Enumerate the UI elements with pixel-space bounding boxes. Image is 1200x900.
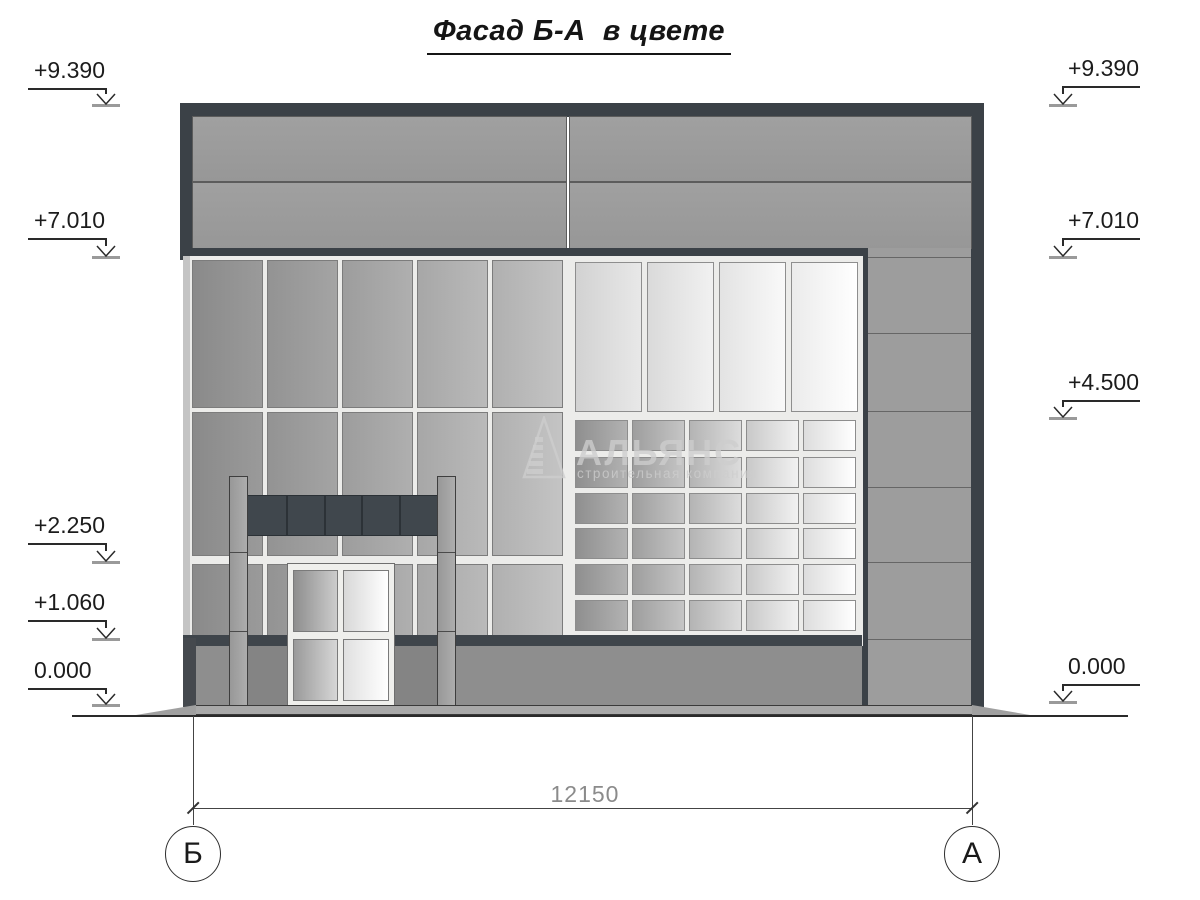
watermark: АЛЬЯНС строительная компания (520, 416, 566, 485)
facade-panel (267, 260, 338, 408)
facade-window-pane (803, 493, 856, 524)
facade-window-pane (632, 493, 685, 524)
right-frame-edge (971, 103, 984, 710)
elevation-leader-line (28, 620, 106, 622)
elevation-arrow-icon (1052, 244, 1074, 257)
facade-window-pane (575, 528, 628, 559)
pillar-joint (230, 631, 247, 632)
elevation-arrow-icon (1052, 92, 1074, 105)
elevation-arrow-icon (95, 244, 117, 257)
elevation-label: 0.000 (1068, 653, 1126, 680)
elevation-arrow-icon (95, 692, 117, 705)
elevation-label: +2.250 (34, 512, 105, 539)
curtain-wall-pane (719, 262, 786, 412)
elevation-leader-line (28, 88, 106, 90)
panel-joint-line (868, 639, 971, 640)
elevation-label: +4.500 (1068, 369, 1139, 396)
door-pane (293, 570, 338, 632)
panel-joint-line (868, 487, 971, 488)
axis-bubble-a: А (944, 826, 1000, 882)
dimension-line (193, 808, 972, 809)
entrance-pillar-right (437, 476, 456, 708)
facade-window-pane (575, 600, 628, 631)
elevation-leader-line (28, 238, 106, 240)
pillar-joint (230, 552, 247, 553)
elevation-arrow-icon (1052, 405, 1074, 418)
elevation-label: 0.000 (34, 657, 92, 684)
facade-panel (417, 260, 488, 408)
dimension-value: 12150 (540, 781, 630, 808)
entrance-pillar-left (229, 476, 248, 708)
axis-label-a: А (962, 837, 982, 871)
entrance-canopy (248, 496, 437, 535)
canopy-segment-divider (286, 496, 288, 535)
elevation-arrow-icon (95, 92, 117, 105)
elevation-label: +9.390 (34, 57, 105, 84)
facade-window-pane (575, 493, 628, 524)
facade-window-pane (575, 564, 628, 595)
facade-panel (192, 564, 263, 636)
base-panel (248, 646, 287, 707)
facade-window-pane (746, 564, 799, 595)
panel-joint-line (868, 257, 971, 258)
facade-window-pane (746, 600, 799, 631)
facade-window-pane (632, 600, 685, 631)
drawing-title: Фасад Б-А в цвете (427, 15, 731, 55)
curtain-wall-pane (791, 262, 858, 412)
facade-window-pane (689, 528, 742, 559)
facade-window-pane (632, 564, 685, 595)
curtain-wall-pane (647, 262, 714, 412)
facade-window-pane (803, 457, 856, 488)
facade-window-pane (746, 528, 799, 559)
facade-panel (192, 260, 263, 408)
curtain-wall-pane (575, 262, 642, 412)
elevation-arrow-icon (95, 626, 117, 639)
base-left-edge (183, 638, 196, 707)
facade-window-pane (803, 564, 856, 595)
facade-window-pane (746, 420, 799, 451)
door-pane (343, 570, 389, 632)
facade-window-pane (803, 420, 856, 451)
facade-panel (342, 260, 413, 408)
elevation-label: +7.010 (1068, 207, 1139, 234)
facade-drawing: Фасад Б-А в цвете (0, 0, 1200, 900)
watermark-triangle-logo (520, 416, 566, 480)
canopy-segment-divider (324, 496, 326, 535)
elevation-leader-line (1062, 86, 1140, 88)
canopy-segment-divider (361, 496, 363, 535)
pillar-joint (438, 631, 455, 632)
axis-label-b: Б (183, 837, 203, 871)
pillar-joint (438, 552, 455, 553)
facade-panel (492, 564, 563, 636)
panel-joint-line (868, 562, 971, 563)
ground-line (72, 715, 1128, 717)
elevation-leader-line (1062, 400, 1140, 402)
base-panel (395, 646, 437, 707)
elevation-leader-line (1062, 684, 1140, 686)
elevation-label: +1.060 (34, 589, 105, 616)
door-pane (293, 639, 338, 701)
canopy-segment-divider (399, 496, 401, 535)
entrance-platform (196, 705, 972, 715)
parapet-band (180, 103, 983, 117)
elevation-leader-line (28, 688, 106, 690)
upper-wall-panel (193, 117, 566, 181)
plinth-band (183, 635, 862, 646)
upper-wall-panel (570, 117, 971, 181)
facade-window-pane (689, 564, 742, 595)
facade-window-pane (803, 600, 856, 631)
elevation-arrow-icon (95, 549, 117, 562)
left-frame-edge (180, 103, 193, 260)
watermark-subtitle: строительная компания (577, 466, 758, 481)
facade-window-pane (689, 493, 742, 524)
facade-window-pane (746, 493, 799, 524)
elevation-arrow-icon (1052, 689, 1074, 702)
elevation-leader-line (1062, 238, 1140, 240)
facade-window-pane (803, 528, 856, 559)
facade-window-pane (632, 528, 685, 559)
panel-joint-line (868, 411, 971, 412)
elevation-leader-line (28, 543, 106, 545)
entrance-door (287, 563, 395, 707)
platform-ramp-left (136, 705, 196, 715)
axis-bubble-b: Б (165, 826, 221, 882)
facade-panel (492, 260, 563, 408)
upper-wall-panel (193, 183, 566, 248)
facade-window-pane (689, 600, 742, 631)
elevation-label: +7.010 (34, 207, 105, 234)
elevation-label: +9.390 (1068, 55, 1139, 82)
panel-joint-line (868, 333, 971, 334)
upper-wall-panel (570, 183, 971, 248)
door-pane (343, 639, 389, 701)
left-trim-strip (183, 256, 190, 638)
